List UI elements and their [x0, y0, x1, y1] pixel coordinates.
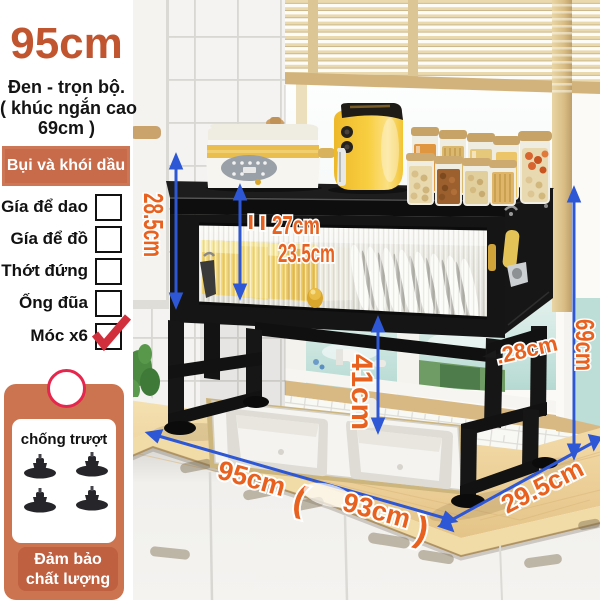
svg-text:28.5cm: 28.5cm	[138, 193, 169, 257]
svg-text:27cm: 27cm	[272, 210, 320, 240]
svg-text:41cm: 41cm	[345, 354, 378, 430]
svg-text:69cm: 69cm	[570, 319, 600, 371]
svg-text:23.5cm: 23.5cm	[278, 238, 335, 268]
